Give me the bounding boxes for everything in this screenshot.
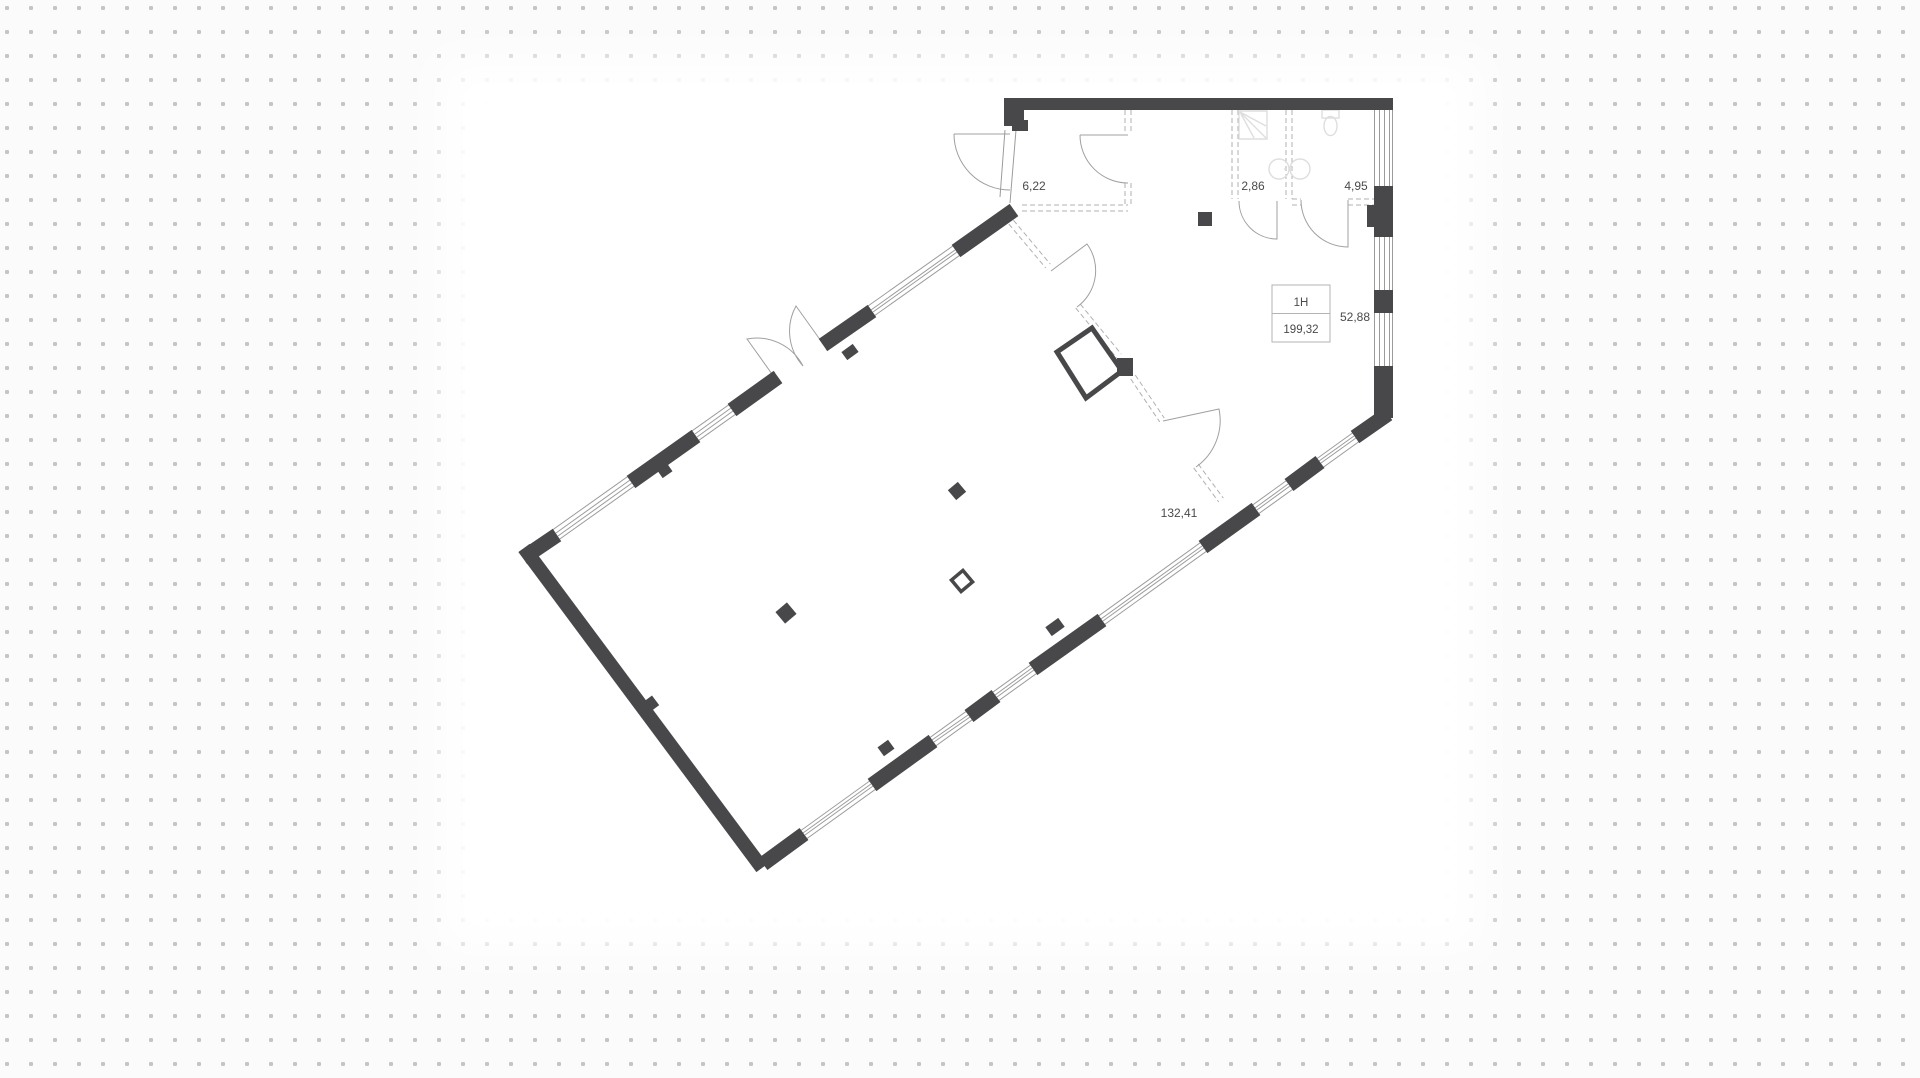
unit-total-area-label: 199,32 [1283, 324, 1318, 336]
vent-shaft-block [1117, 358, 1133, 376]
unit-number-label: 1H [1294, 297, 1309, 309]
area-label-vestibule: 6,22 [1022, 179, 1046, 193]
right-wall-notch [1367, 205, 1376, 227]
floorplan-viewer: 6,22 2,86 4,95 52,88 132,41 1H 199,32 [0, 0, 1920, 1078]
column-hall [1198, 212, 1212, 226]
area-label-wc-large: 4,95 [1344, 179, 1368, 193]
floor-plan-canvas[interactable]: 6,22 2,86 4,95 52,88 132,41 1H 199,32 [0, 0, 1920, 1078]
area-label-main-room: 132,41 [1161, 506, 1198, 520]
area-label-wc-small: 2,86 [1241, 179, 1265, 193]
area-label-hall: 52,88 [1340, 310, 1370, 324]
entrance-corner-notch [1012, 120, 1028, 131]
unit-info-box[interactable]: 1H 199,32 [1272, 285, 1330, 342]
